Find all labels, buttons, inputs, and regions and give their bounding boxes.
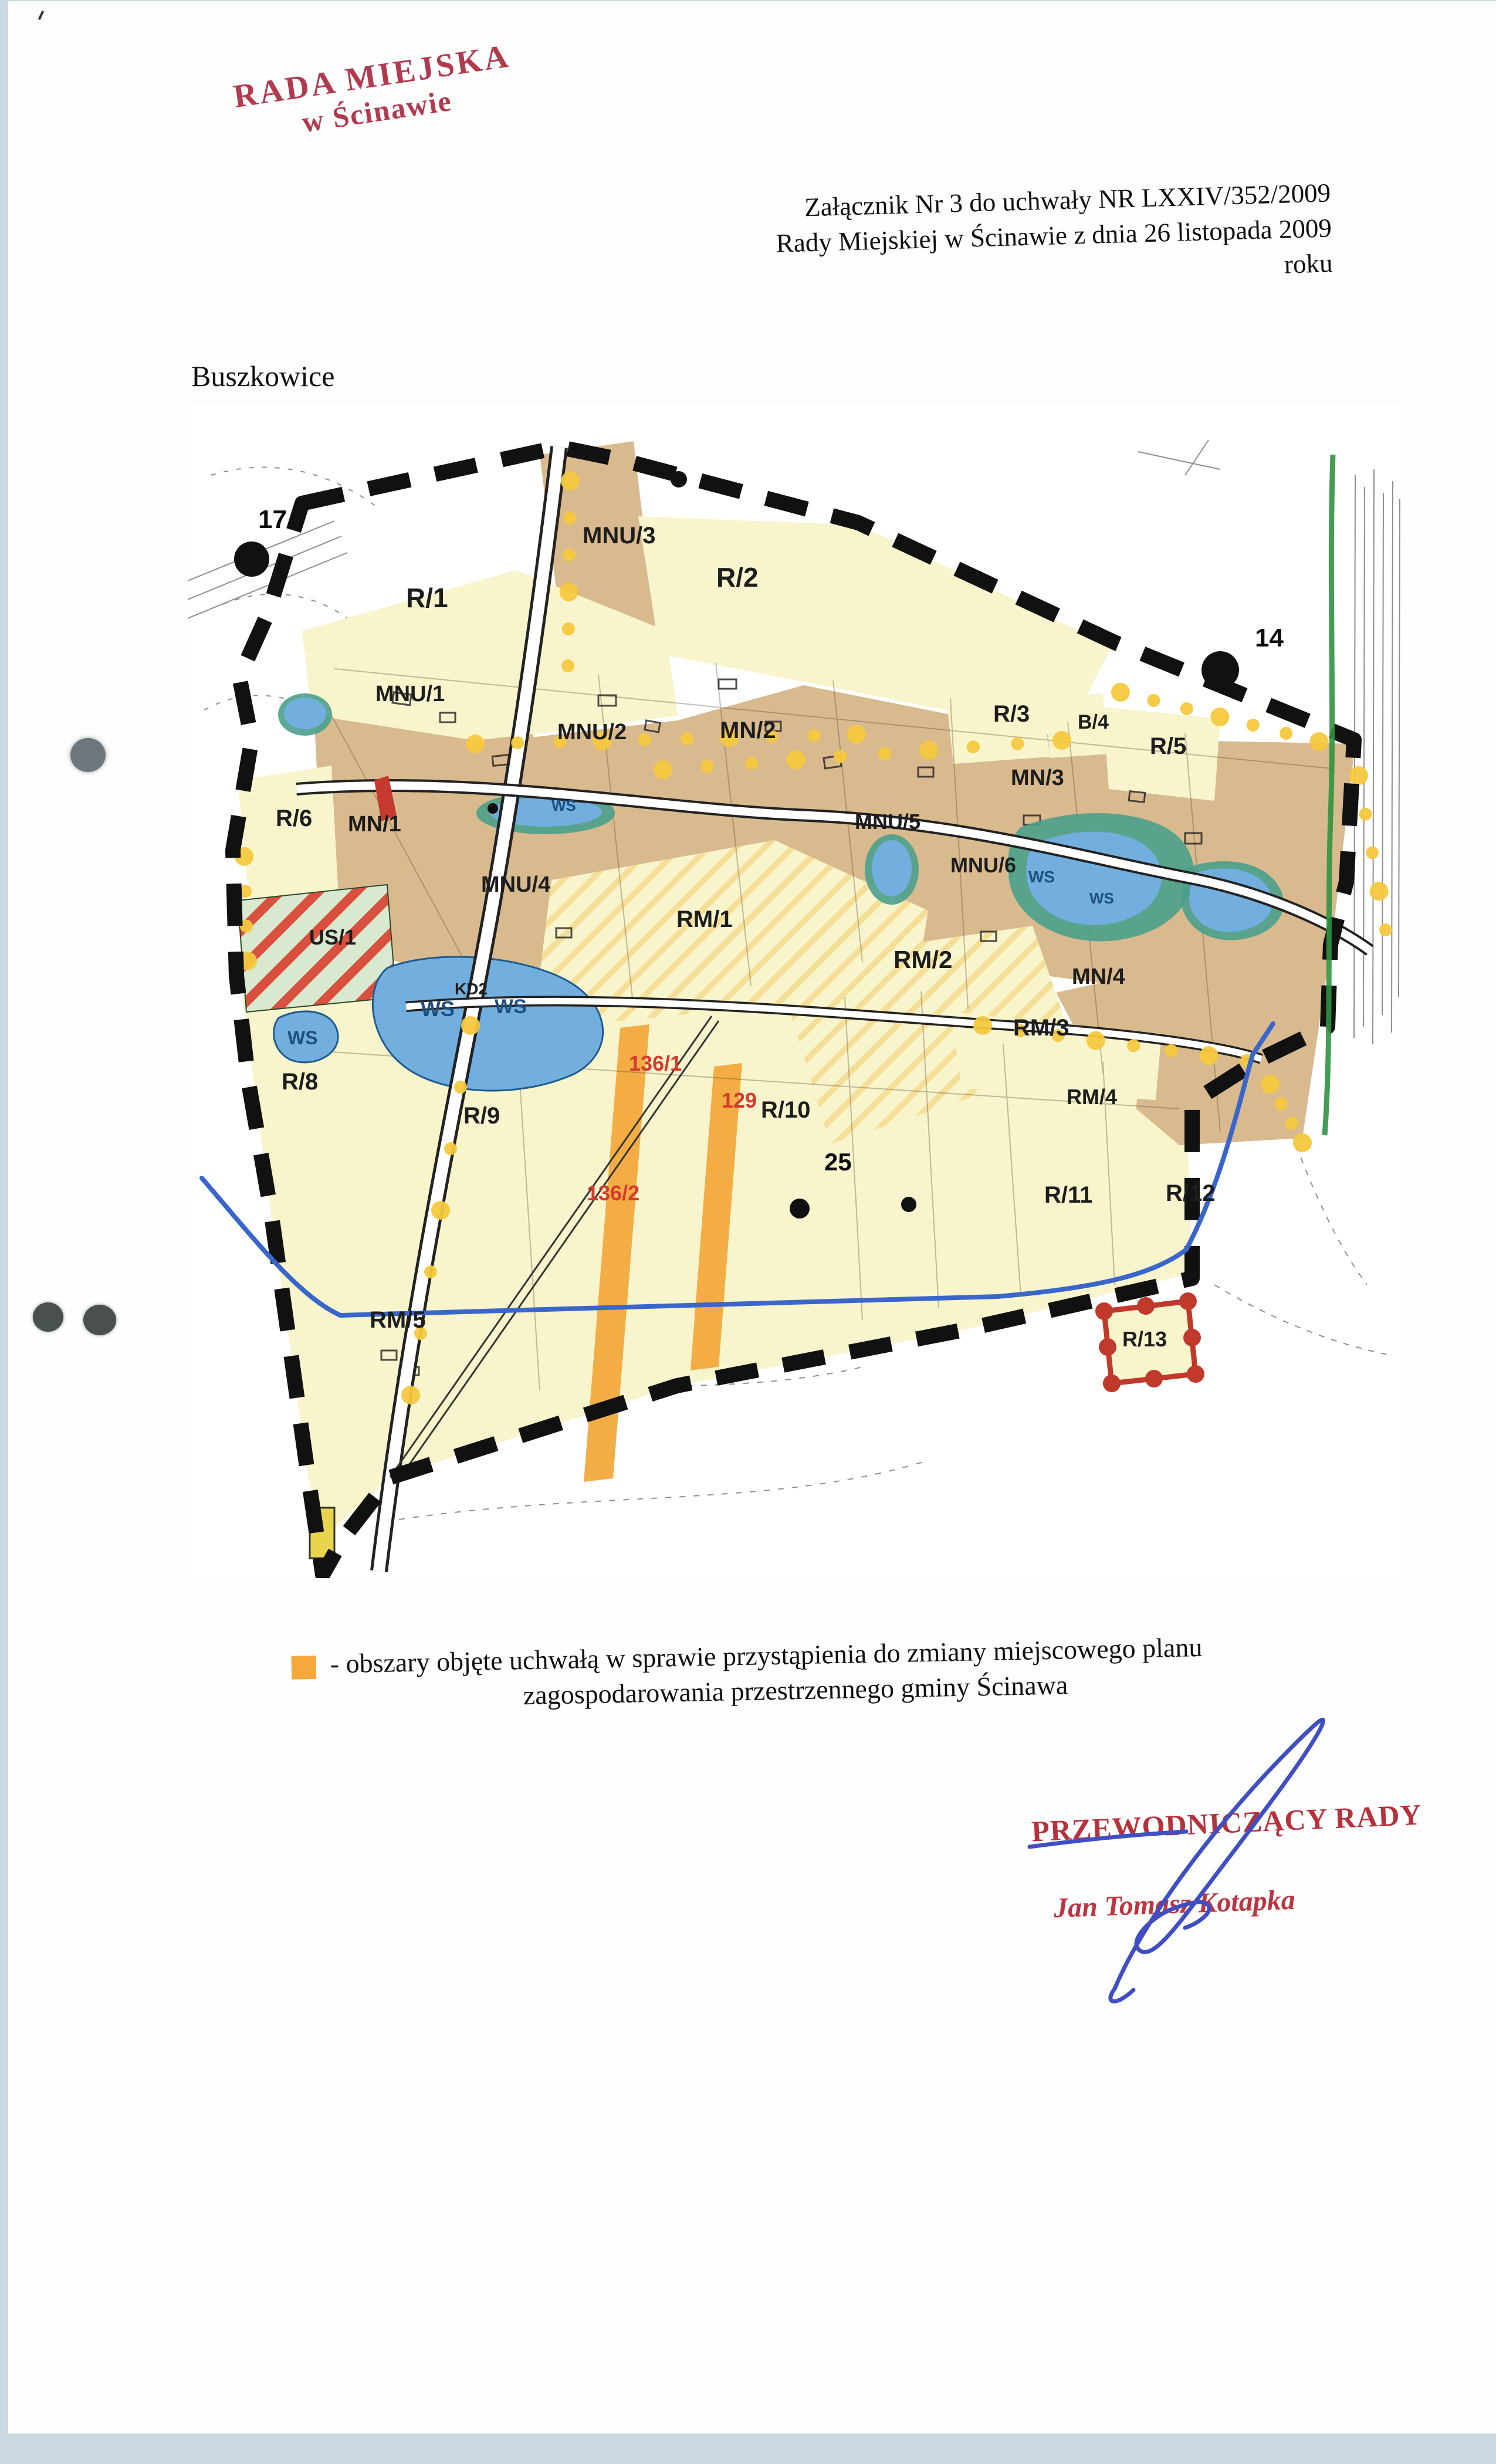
road-dot xyxy=(561,472,580,490)
road-dot xyxy=(919,741,938,760)
road-dot xyxy=(1285,1117,1298,1130)
road-dot xyxy=(1200,1046,1219,1065)
scanned-document-page: RADA MIEJSKA w Ścinawie Załącznik Nr 3 d… xyxy=(0,0,1496,2464)
road-dot xyxy=(701,760,714,773)
map-label-mnu-6: MNU/6 xyxy=(950,853,1016,877)
road-dot xyxy=(401,1386,420,1404)
road-dot xyxy=(511,736,524,749)
map-label-us-1: US/1 xyxy=(309,925,356,949)
map-title: Buszkowice xyxy=(191,359,334,393)
road-dot xyxy=(1293,1133,1312,1152)
map-label-ws: WS xyxy=(1089,889,1114,907)
hole-punch-mark xyxy=(33,1302,63,1332)
map-label-rm-3: RM/3 xyxy=(1013,1015,1069,1041)
road-dot xyxy=(424,1265,437,1278)
map-label-b-4: B/4 xyxy=(1078,711,1109,733)
road-dot xyxy=(745,757,758,770)
road-dot xyxy=(466,735,485,753)
map-label-mnu-3: MNU/3 xyxy=(583,523,655,549)
hole-punch-mark xyxy=(83,1305,116,1335)
map-label-r-11: R/11 xyxy=(1044,1182,1092,1208)
map-label-mnu-5: MNU/5 xyxy=(855,810,920,834)
map-label-25: 25 xyxy=(824,1148,852,1176)
map-label-136-2: 136/2 xyxy=(587,1181,639,1205)
map-label-mnu-4: MNU/4 xyxy=(481,872,550,897)
road-dot xyxy=(1349,766,1368,785)
road-dot xyxy=(444,1142,457,1155)
road-dot xyxy=(1274,1097,1287,1110)
road-dot xyxy=(1147,694,1160,707)
road-dot xyxy=(1210,708,1229,726)
map-label-14: 14 xyxy=(1255,624,1284,652)
road-dot xyxy=(563,512,576,524)
road-dot xyxy=(1379,923,1392,936)
map-label-mn-4: MN/4 xyxy=(1072,964,1125,989)
road-dot xyxy=(562,622,575,635)
map-label-mnu-1: MNU/1 xyxy=(375,682,445,706)
map-label-mnu-2: MNU/2 xyxy=(557,720,627,744)
map-label-mn-1: MN/1 xyxy=(348,812,401,837)
map-label-mn-2: MN/2 xyxy=(720,717,776,743)
road-dot xyxy=(681,732,693,745)
map-label-rm-4: RM/4 xyxy=(1067,1085,1117,1109)
road-dot xyxy=(1247,719,1260,732)
map-label-17: 17 xyxy=(258,505,287,534)
road-dot xyxy=(787,750,805,769)
road-dot xyxy=(560,583,578,601)
map-label-r-2: R/2 xyxy=(716,562,759,593)
road-dot xyxy=(1370,882,1389,901)
map-label-r-1: R/1 xyxy=(406,583,448,613)
map-label-r-6: R/6 xyxy=(276,805,312,831)
map-label-ws: WS xyxy=(1028,868,1055,886)
road-dot xyxy=(454,1081,467,1094)
zoning-map-svg: MNU/3R/1R/2MNU/1MNU/2MN/2R/3B/4R/5MN/3R/… xyxy=(188,405,1402,1578)
map-label-r-12: R/12 xyxy=(1166,1180,1216,1206)
road-dot xyxy=(1359,808,1372,821)
road-dot xyxy=(1280,727,1292,740)
road-dot xyxy=(561,659,574,672)
road-dot xyxy=(834,750,847,763)
road-dot xyxy=(431,1201,450,1220)
road-dot xyxy=(1011,737,1024,750)
map-label-kd2: KD2 xyxy=(455,980,488,998)
map-label-rm-1: RM/1 xyxy=(676,906,733,932)
road-dot xyxy=(563,549,576,561)
map-label-r-8: R/8 xyxy=(282,1069,318,1095)
map-label-rm-2: RM/2 xyxy=(893,946,952,973)
map-label-r-13: R/13 xyxy=(1122,1327,1167,1351)
map-label-ws: WS xyxy=(421,997,455,1021)
road-dot xyxy=(461,1016,480,1035)
map-label-r-3: R/3 xyxy=(993,701,1030,727)
road-dot xyxy=(1366,847,1379,859)
map-label-136-1: 136/1 xyxy=(629,1051,682,1075)
road-dot xyxy=(973,1016,992,1035)
road-dot xyxy=(654,760,672,779)
road-dot xyxy=(1127,1039,1140,1052)
pen-signature xyxy=(939,1684,1361,2012)
map-label-mn-3: MN/3 xyxy=(1011,766,1064,790)
map-label-ws: WS xyxy=(287,1027,318,1048)
road-dot xyxy=(1310,732,1329,751)
map-label-r-5: R/5 xyxy=(1150,733,1186,759)
road-dot xyxy=(1165,1044,1177,1057)
zoning-map: MNU/3R/1R/2MNU/1MNU/2MN/2R/3B/4R/5MN/3R/… xyxy=(188,405,1402,1578)
hole-punch-mark xyxy=(70,738,106,772)
road-dot xyxy=(1052,731,1071,750)
map-label-ws: WS xyxy=(551,797,576,814)
map-label-129: 129 xyxy=(722,1088,757,1112)
map-label-r-9: R/9 xyxy=(463,1103,500,1129)
road-dot xyxy=(967,740,980,753)
road-dot xyxy=(808,729,821,742)
road-dot xyxy=(1087,1031,1105,1050)
map-label-ws: WS xyxy=(495,996,527,1018)
map-label-rm-5: RM/5 xyxy=(370,1307,426,1333)
map-label-r-10: R/10 xyxy=(761,1097,811,1123)
road-dot xyxy=(1261,1075,1280,1094)
road-dot xyxy=(1111,683,1130,702)
legend-change-area-swatch xyxy=(291,1656,316,1680)
road-dot xyxy=(847,725,866,744)
attachment-header: Załącznik Nr 3 do uchwały NR LXXIV/352/2… xyxy=(756,175,1333,296)
road-dot xyxy=(1180,702,1193,715)
road-dot xyxy=(638,733,651,746)
road-dot xyxy=(878,747,891,760)
